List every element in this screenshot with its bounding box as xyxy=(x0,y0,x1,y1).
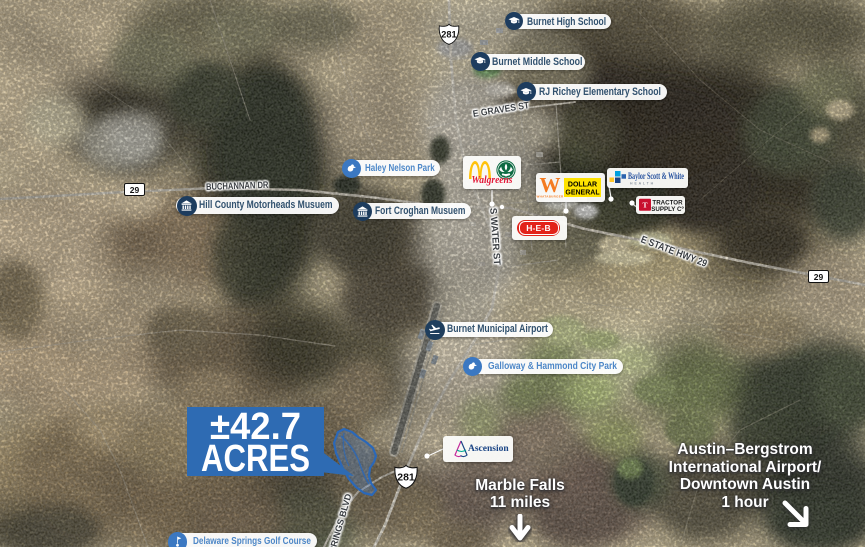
svg-text:GENERAL: GENERAL xyxy=(565,190,600,197)
svg-text:HEALTH: HEALTH xyxy=(630,182,655,186)
svg-text:DOLLAR: DOLLAR xyxy=(568,182,597,189)
svg-text:SUPPLY Cº: SUPPLY Cº xyxy=(651,206,684,213)
svg-text:281: 281 xyxy=(441,30,456,40)
svg-text:Baylor Scott & White: Baylor Scott & White xyxy=(628,171,684,181)
svg-text:WHATABURGER: WHATABURGER xyxy=(536,195,564,199)
svg-text:W: W xyxy=(540,173,561,197)
svg-text:T: T xyxy=(642,200,647,209)
svg-text:281: 281 xyxy=(397,473,415,484)
